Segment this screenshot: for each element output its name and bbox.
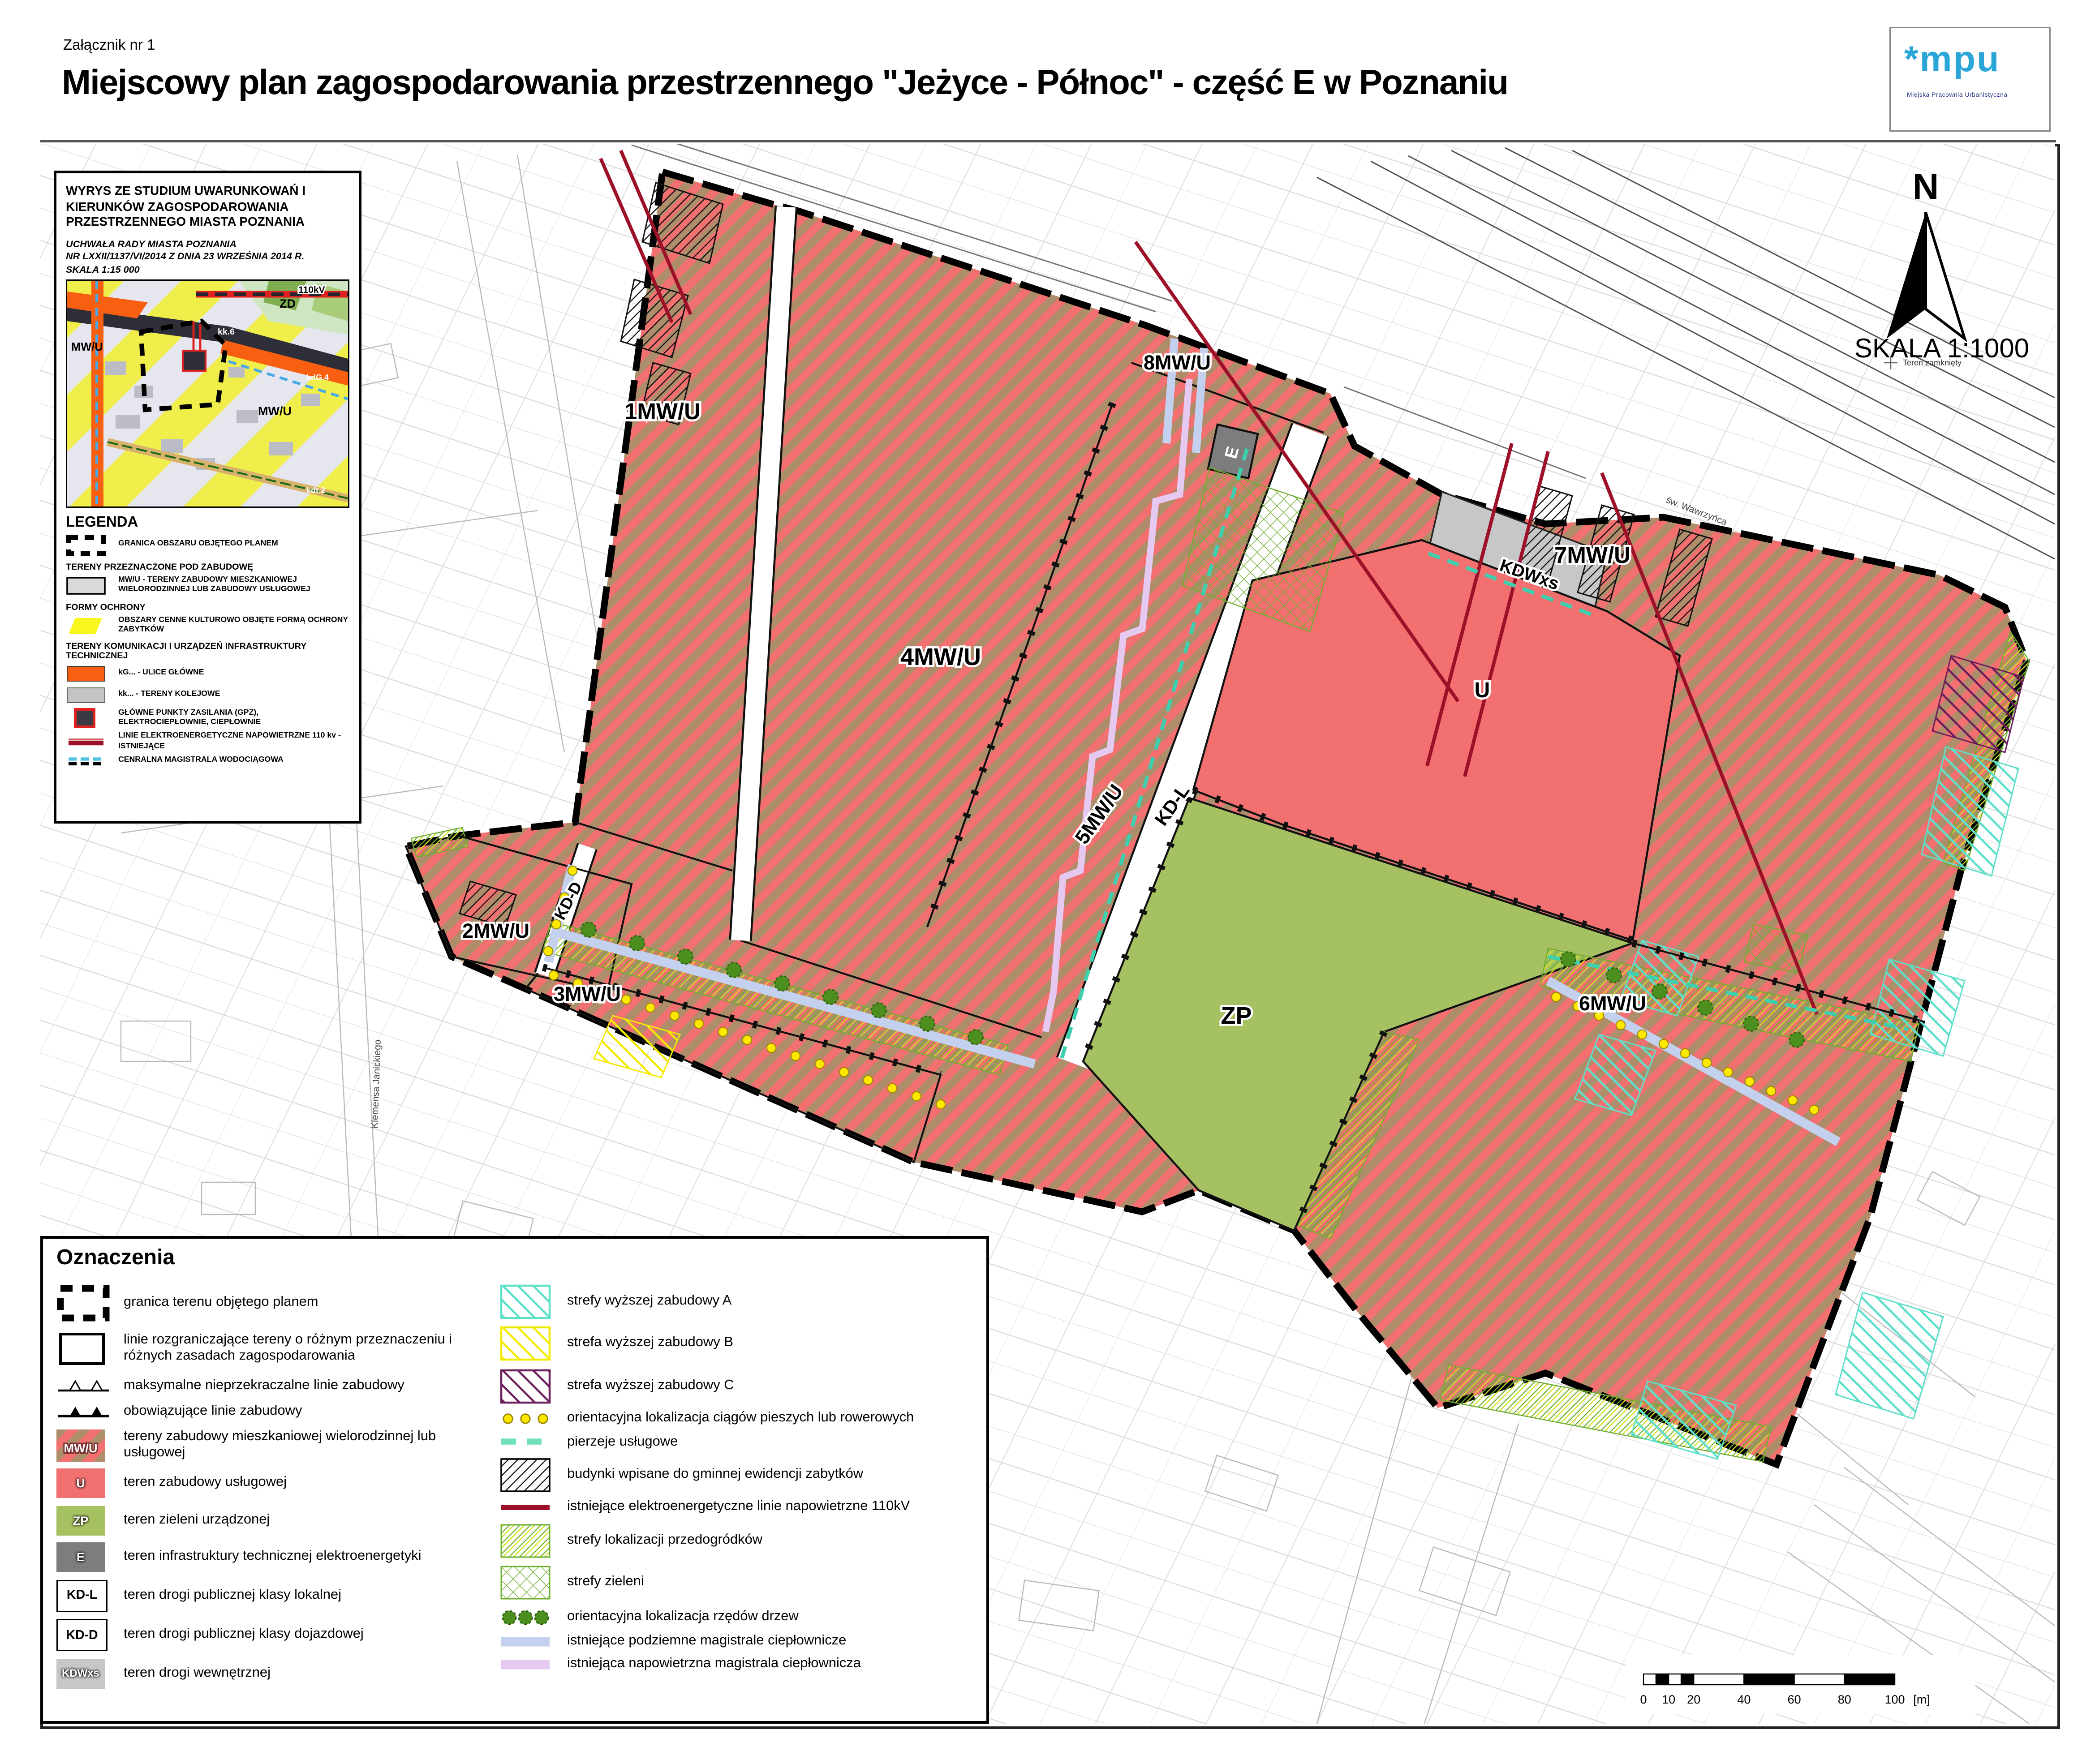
svg-text:[m]: [m] (1913, 1693, 1930, 1706)
ozn-row-linie-rozgr: linie rozgraniczające tereny o różnym pr… (56, 1329, 500, 1369)
zone-label-4mwu: 4MW/U (900, 644, 981, 670)
header-divider (40, 140, 2056, 142)
svg-text:80: 80 (1838, 1693, 1851, 1706)
minimap-label-kdt2: kdt.2 (306, 486, 325, 495)
study-title: WYRYS ZE STUDIUM UWARUNKOWAŃ I KIERUNKÓW… (66, 184, 349, 231)
ozn-row-granica: granica terenu objętego planem (56, 1284, 500, 1322)
svg-text:MW/U: MW/U (64, 1441, 98, 1455)
ozn-row-kdd: KD-D teren drogi publicznej klasy dojazd… (56, 1619, 500, 1651)
legend-row-linie: LINIE ELEKTROENERGETYCZNE NAPOWIETRZNE 1… (66, 733, 349, 752)
underground-main-icon (500, 1635, 559, 1648)
railway-area-icon (66, 687, 112, 704)
zone-label-u: U (1475, 678, 1490, 702)
minimap-label-mwu-left: MW/U (71, 341, 103, 353)
zone-label-2mwu: 2MW/U (462, 919, 529, 942)
path-dots-icon (500, 1411, 559, 1427)
ozn-row-e: E teren infrastruktury technicznej elekt… (56, 1542, 500, 1572)
svg-text:20: 20 (1687, 1693, 1700, 1706)
ozn-row-napowietrzna: istniejąca napowietrzna magistrala ciepł… (500, 1657, 970, 1673)
mpu-star-icon: * (1904, 39, 1920, 79)
ozn-row-zp: ZP teren zieleni urządzonej (56, 1506, 500, 1535)
svg-text:10: 10 (1662, 1693, 1675, 1706)
legend-row-granica: GRANICA OBSZARU OBJĘTEGO PLANEM (66, 535, 349, 556)
front-garden-icon (500, 1523, 559, 1558)
ozn-row-strefa-b: strefa wyższej zabudowy B (500, 1326, 970, 1361)
mwu-area-icon (66, 577, 112, 596)
study-resolution-3: SKALA 1:15 000 (66, 263, 349, 275)
oznaczenia-title: Oznaczenia (56, 1247, 973, 1271)
ozn-row-strefa-c: strefa wyższej zabudowy C (500, 1369, 970, 1403)
zp-zone-icon: ZP (56, 1506, 105, 1535)
minimap-label-kdg4: kdG.4 (306, 373, 329, 382)
power-line-110kv-icon (500, 1502, 559, 1513)
legend-row-kk: kk... - TERENY KOLEJOWE (66, 687, 349, 704)
ozn-row-maks-linie: maksymalne nieprzekraczalne linie zabudo… (56, 1377, 500, 1395)
u-zone-icon: U (56, 1468, 105, 1498)
legend-section-1: TERENY PRZEZNACZONE POD ZABUDOWĘ (66, 563, 349, 572)
height-zone-c-icon (500, 1369, 559, 1403)
zone-label-1mwu: 1MW/U (624, 399, 701, 424)
minimap-label-mwu-right: MW/U (258, 404, 292, 418)
ozn-row-kdl: KD-L teren drogi publicznej klasy lokaln… (56, 1579, 500, 1612)
gpz-icon (66, 708, 112, 729)
ozn-row-kdwxs: KDWxs teren drogi wewnętrznej (56, 1659, 500, 1688)
legend-row-obszary: OBSZARY CENNE KULTUROWO OBJĘTE FORMĄ OCH… (66, 616, 349, 636)
legend-row-kg: kG... - ULICE GŁÓWNE (66, 665, 349, 683)
ozn-row-pierzeje: pierzeje usługowe (500, 1434, 970, 1450)
ozn-row-obow-linie: obowiązujące linie zabudowy (56, 1403, 500, 1421)
study-minimap[interactable]: MW/U MW/U ZD 110kV kk.6 kdG.4 kdt.2 (66, 279, 349, 508)
svg-text:40: 40 (1737, 1693, 1751, 1706)
mwu-zone-icon: MW/U (56, 1429, 116, 1461)
overhead-main-icon (500, 1658, 559, 1672)
plan-boundary-icon (56, 1284, 116, 1322)
dividing-line-icon (56, 1329, 116, 1369)
ozn-row-mwu: MW/U tereny zabudowy mieszkaniowej wielo… (56, 1429, 500, 1461)
power-line-icon (66, 737, 112, 748)
minimap-label-110kv: 110kV (298, 285, 325, 295)
scale-bar: 0 10 20 40 60 80 100 [m] (1626, 1655, 1975, 1714)
zone-label-zp: ZP (1221, 1002, 1252, 1029)
mpu-logo-mark: *mpu (1904, 39, 2000, 81)
ozn-row-przedogrodki: strefy lokalizacji przedogródków (500, 1523, 970, 1558)
zone-label-7mwu: 7MW/U (1554, 542, 1630, 568)
ozn-row-strefy-zieleni: strefy zieleni (500, 1565, 970, 1600)
ozn-row-u: U teren zabudowy usługowej (56, 1468, 500, 1498)
study-resolution-1: UCHWAŁA RADY MIASTA POZNANIA (66, 237, 349, 250)
ozn-row-podziemne: istniejące podziemne magistrale ciepłown… (500, 1634, 970, 1649)
legend-section-2: FORMY OCHRONY (66, 603, 349, 612)
main-street-icon (66, 665, 112, 683)
page-title: Miejscowy plan zagospodarowania przestrz… (62, 62, 1508, 103)
zone-label-8mwu: 8MW/U (1144, 351, 1211, 374)
green-zone-icon (500, 1565, 559, 1600)
kdwxs-zone-icon: KDWxs (56, 1659, 105, 1688)
ozn-row-drzewa: orientacyjna lokalizacja rzędów drzew (500, 1608, 970, 1627)
attachment-number: Załącznik nr 1 (63, 38, 155, 54)
minimap-label-kk6: kk.6 (218, 327, 235, 337)
legend-section-3: TERENY KOMUNIKACJI I URZĄDZEŃ INFRASTRUK… (66, 643, 349, 661)
study-resolution-2: NR LXXII/1137/VI/2014 Z DNIA 23 WRZEŚNIA… (66, 250, 349, 263)
mandatory-building-line-icon (56, 1403, 116, 1421)
oznaczenia-panel: Oznaczenia granica terenu objętego plane… (40, 1236, 989, 1724)
zone-label-3mwu: 3MW/U (554, 983, 621, 1005)
max-building-line-icon (56, 1377, 116, 1395)
plan-boundary-icon (66, 535, 112, 556)
legend-row-gpz: GŁÓWNE PUNKTY ZASILANIA (GPZ), ELEKTROCI… (66, 708, 349, 729)
mpu-logo-subtitle: Miejska Pracownia Urbanistyczna (1907, 91, 2008, 98)
ozn-row-strefa-a: strefy wyższej zabudowy A (500, 1284, 970, 1319)
svg-text:100: 100 (1884, 1693, 1905, 1706)
study-extract-panel: WYRYS ZE STUDIUM UWARUNKOWAŃ I KIERUNKÓW… (54, 171, 361, 824)
tree-row-icon (500, 1608, 559, 1627)
ozn-row-budynki: budynki wpisane do gminnej ewidencji zab… (500, 1457, 970, 1492)
legend-row-magistrala: CENRALNA MAGISTRALA WODOCIĄGOWA (66, 756, 349, 767)
heritage-building-icon (500, 1457, 559, 1492)
svg-text:60: 60 (1788, 1693, 1801, 1706)
north-letter: N (1913, 167, 1939, 207)
service-frontage-icon (500, 1437, 559, 1447)
plan-sheet: Załącznik nr 1 Miejscowy plan zagospodar… (0, 0, 2095, 1764)
ozn-row-ciagi: orientacyjna lokalizacja ciągów pieszych… (500, 1411, 970, 1427)
legend-row-mwu: MW/U - TERENY ZABUDOWY MIESZKANIOWEJ WIE… (66, 576, 349, 596)
legenda-title: LEGENDA (66, 515, 349, 531)
e-zone-icon: E (56, 1542, 105, 1572)
kdd-zone-icon: KD-D (56, 1619, 108, 1651)
zone-label-6mwu: 6MW/U (1579, 992, 1646, 1015)
water-main-icon (66, 756, 112, 767)
kdl-zone-icon: KD-L (56, 1579, 108, 1612)
heritage-area-icon (66, 617, 112, 635)
mpu-logo: *mpu Miejska Pracownia Urbanistyczna (1889, 27, 2051, 132)
height-zone-a-icon (500, 1284, 559, 1319)
svg-text:0: 0 (1640, 1693, 1647, 1706)
minimap-label-zd: ZD (280, 297, 296, 310)
height-zone-b-icon (500, 1326, 559, 1361)
ozn-row-110kv: istniejące elektroenergetyczne linie nap… (500, 1500, 970, 1515)
svg-text:Teren zamknięty: Teren zamknięty (1903, 358, 1962, 367)
